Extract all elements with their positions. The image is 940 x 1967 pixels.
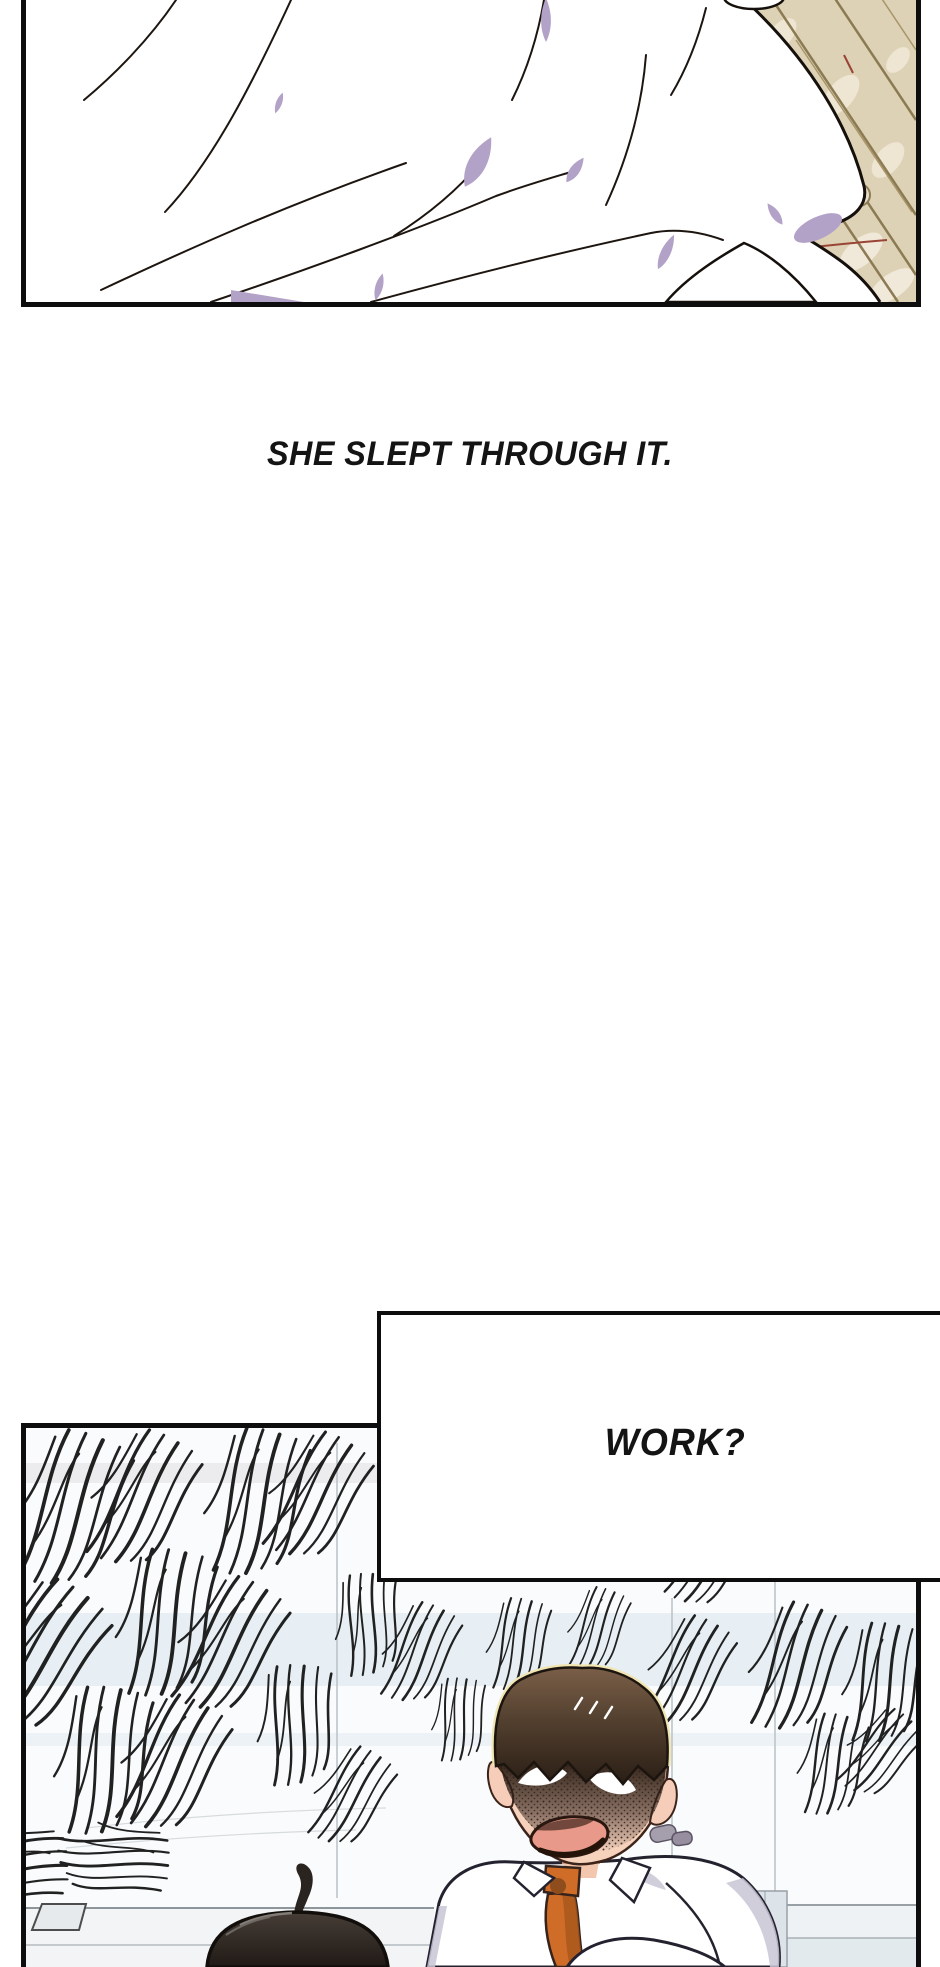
laptop bbox=[32, 1904, 86, 1930]
comic-page: SHE SLEPT THROUGH IT. bbox=[0, 0, 940, 1967]
speech-bubble-work: WORK? bbox=[377, 1311, 940, 1582]
panel-bed-scene bbox=[21, 0, 921, 307]
narration-caption: SHE SLEPT THROUGH IT. bbox=[24, 432, 917, 476]
hair bbox=[495, 1668, 668, 1785]
bed-panel-art bbox=[26, 0, 916, 302]
blanket-corner-fold bbox=[666, 243, 816, 302]
blanket-fold-lines bbox=[84, 0, 723, 302]
speech-text: WORK? bbox=[605, 1422, 746, 1465]
